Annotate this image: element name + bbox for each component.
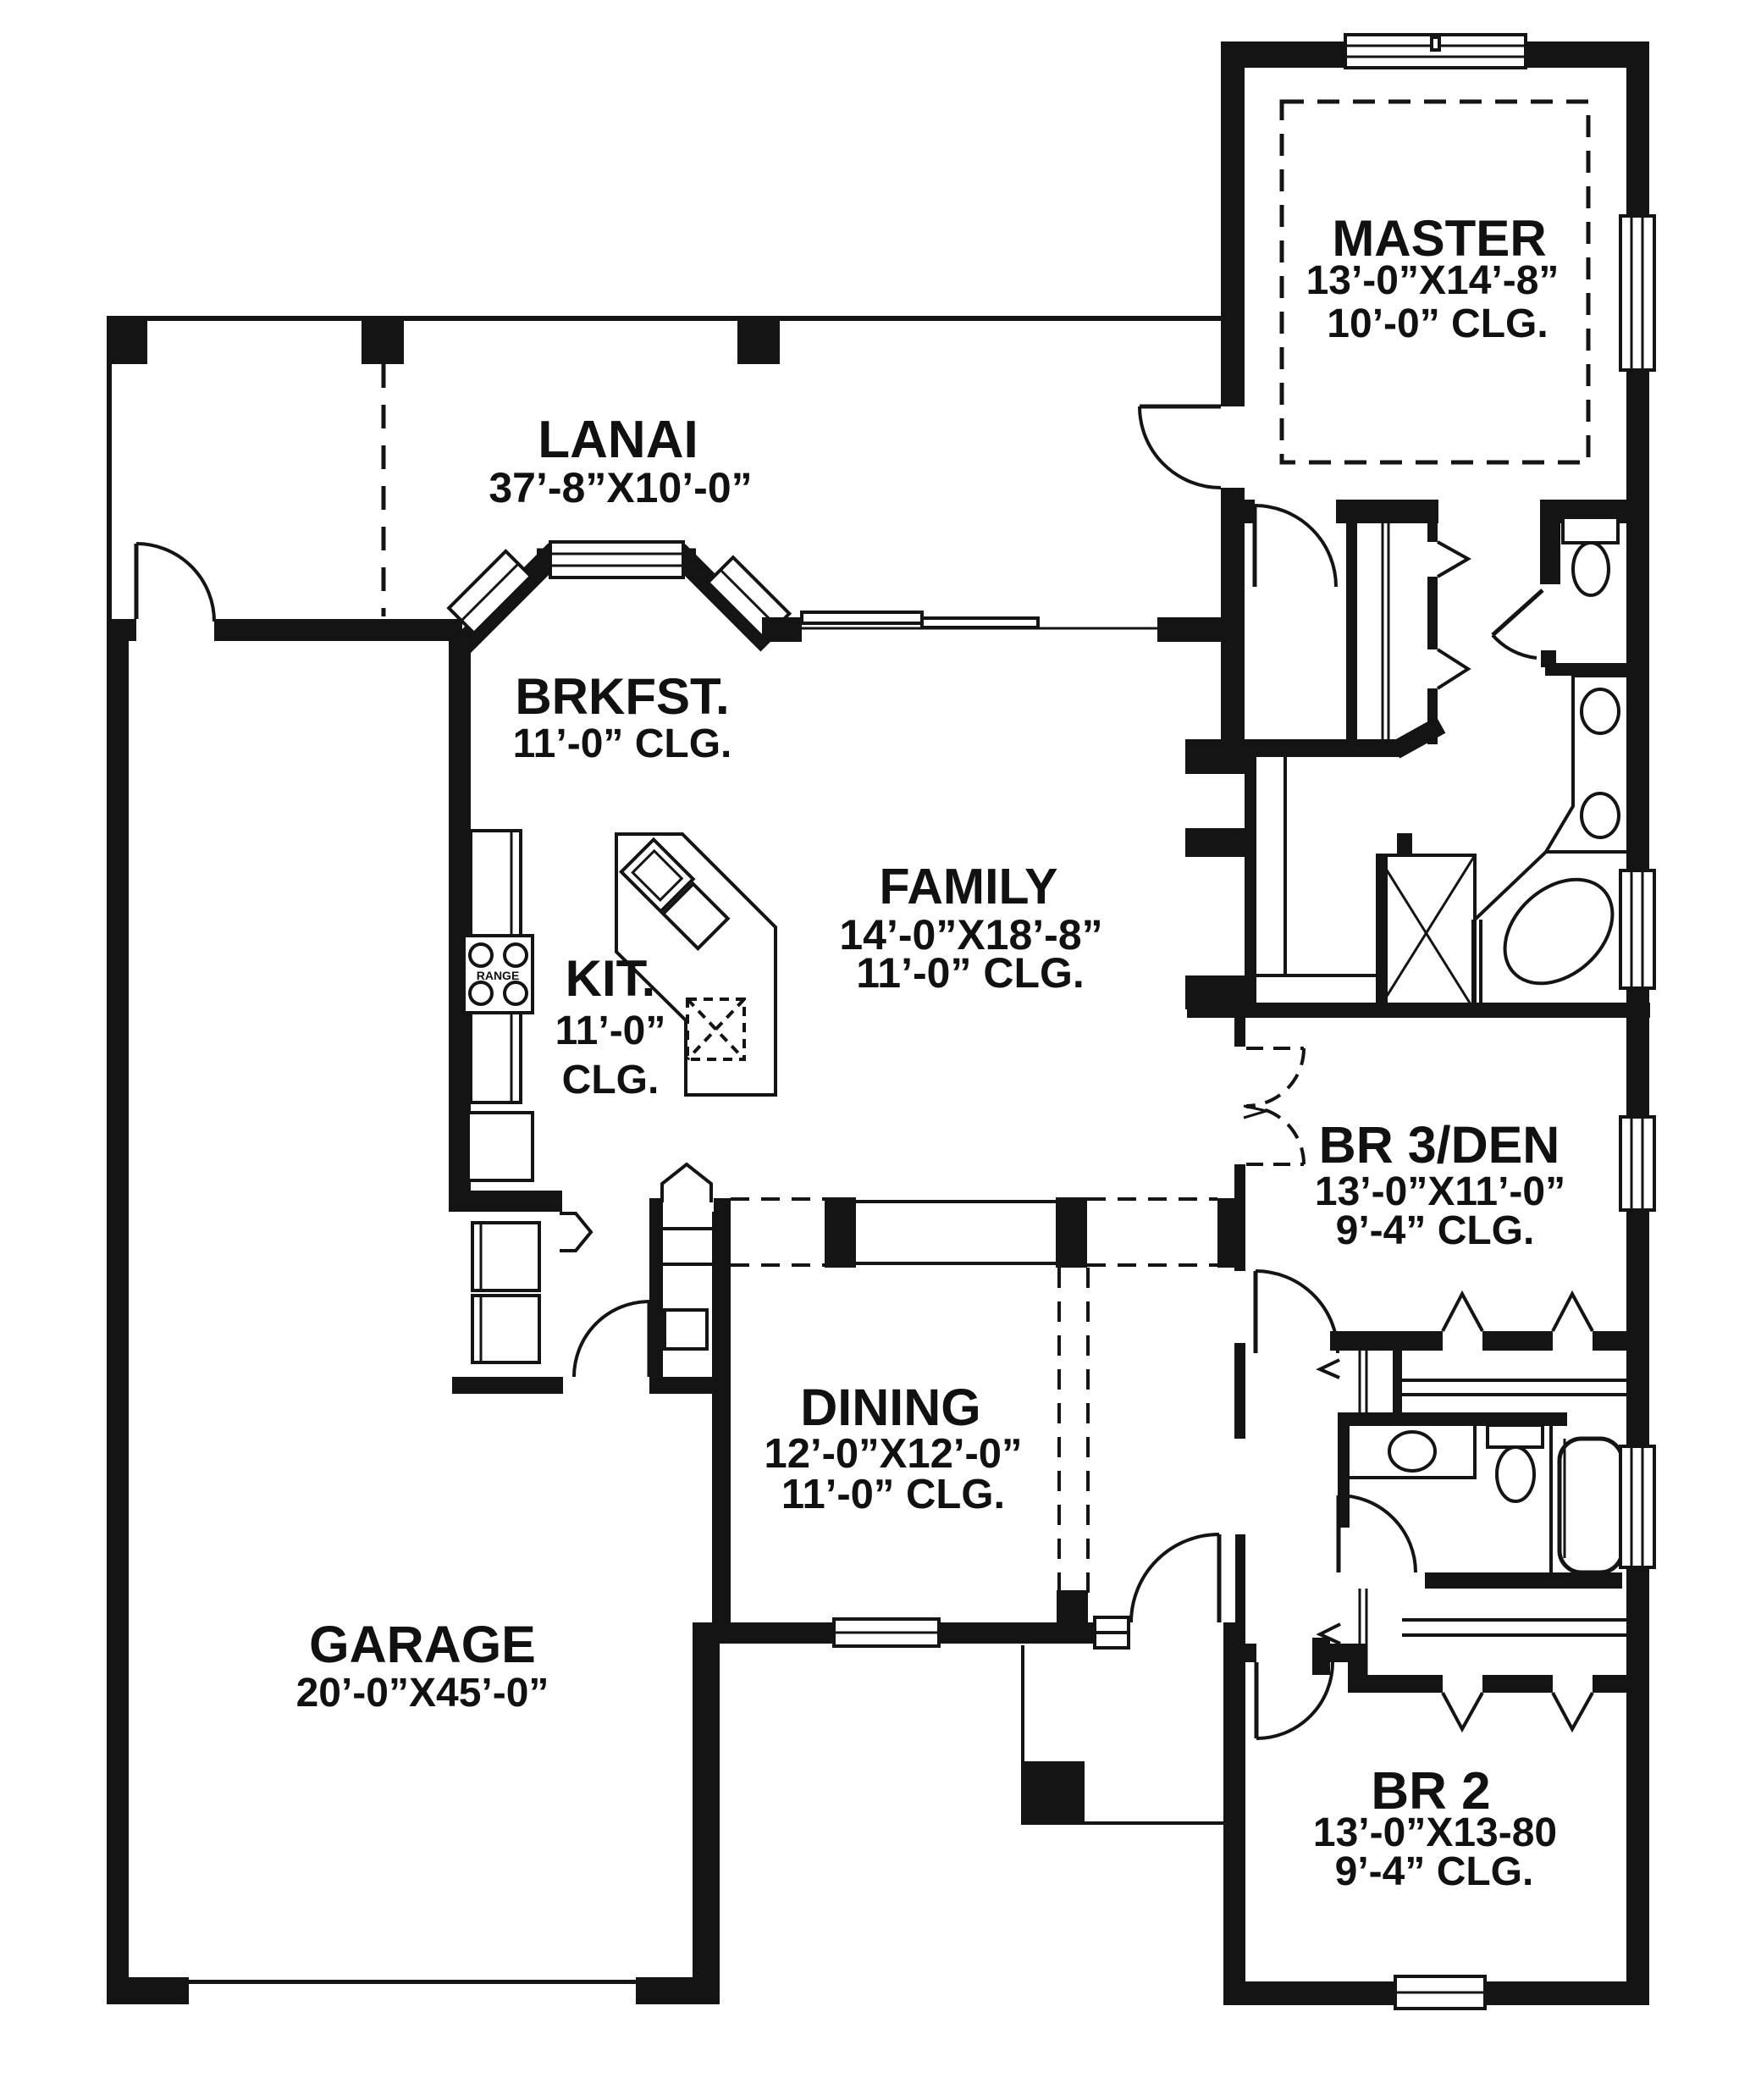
svg-text:20’-0”X45’-0”: 20’-0”X45’-0” <box>296 1671 549 1716</box>
svg-text:GARAGE: GARAGE <box>309 1616 536 1673</box>
svg-text:9’-4” CLG.: 9’-4” CLG. <box>1336 1208 1535 1253</box>
svg-text:BR 3/DEN: BR 3/DEN <box>1319 1116 1560 1174</box>
svg-text:9’-4” CLG.: 9’-4” CLG. <box>1335 1849 1534 1894</box>
svg-text:13’-0”X14’-8”: 13’-0”X14’-8” <box>1306 258 1560 303</box>
svg-text:11’-0”: 11’-0” <box>555 1009 666 1053</box>
svg-text:12’-0”X12’-0”: 12’-0”X12’-0” <box>764 1431 1022 1477</box>
svg-text:RANGE: RANGE <box>477 969 520 982</box>
svg-text:11’-0” CLG.: 11’-0” CLG. <box>781 1472 1005 1517</box>
svg-text:CLG.: CLG. <box>562 1058 660 1102</box>
svg-text:BRKFST.: BRKFST. <box>515 668 729 725</box>
svg-text:10’-0” CLG.: 10’-0” CLG. <box>1327 301 1548 346</box>
svg-text:37’-8”X10’-0”: 37’-8”X10’-0” <box>489 464 752 511</box>
svg-text:11’-0” CLG.: 11’-0” CLG. <box>513 721 732 766</box>
svg-text:LANAI: LANAI <box>538 411 698 469</box>
svg-text:11’-0” CLG.: 11’-0” CLG. <box>856 949 1085 997</box>
svg-text:DINING: DINING <box>800 1379 981 1436</box>
svg-text:KIT.: KIT. <box>566 950 656 1007</box>
svg-text:FAMILY: FAMILY <box>880 859 1058 915</box>
